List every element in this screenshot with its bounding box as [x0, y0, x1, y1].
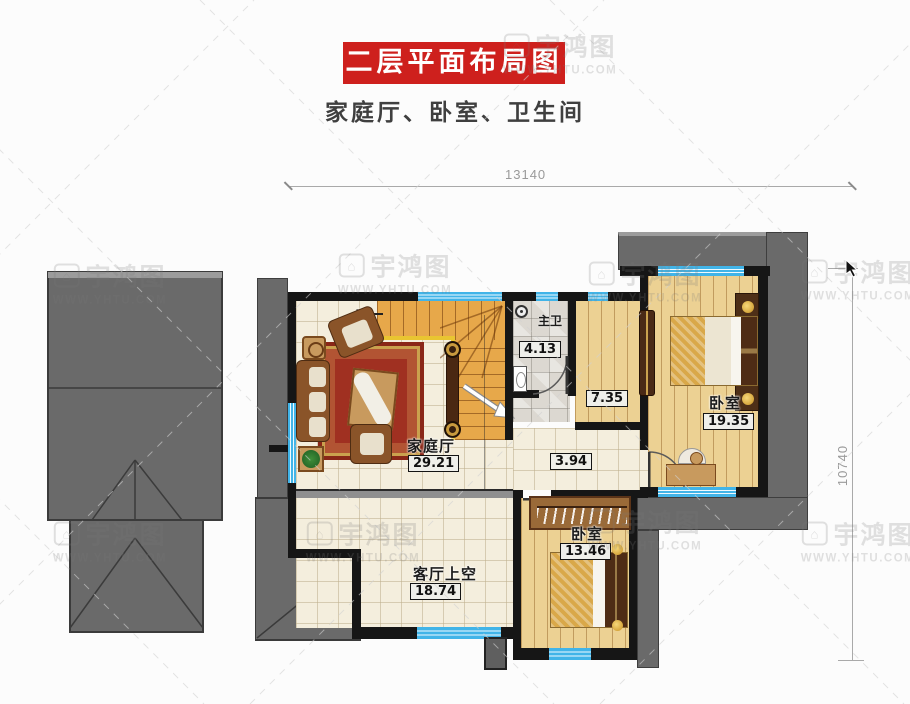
bed-right [670, 316, 758, 386]
dimension-line-top [288, 186, 852, 187]
wall-step-vertical [352, 549, 361, 636]
dimension-tick [838, 660, 864, 661]
plant-pot [298, 446, 324, 472]
wall-stairs-bath [505, 300, 513, 440]
wall-bedroom-bottom-bottom [513, 648, 549, 660]
watermark: ⌂宇鸿图 WWW.YHTU.COM [338, 248, 452, 297]
stair-railing [377, 336, 455, 340]
garage-roof-plan [45, 270, 225, 645]
bedside-lamp [612, 544, 623, 555]
newel-post [444, 341, 461, 358]
armchair [350, 424, 392, 464]
room-label-master-bath: 主卫 [538, 312, 562, 329]
dimension-width-value: 13140 [505, 167, 546, 182]
window-bedroom-right-top [658, 266, 744, 276]
page-subtitle: 家庭厅、卧室、卫生间 [0, 93, 910, 127]
pillar [484, 637, 507, 670]
mouse-cursor [845, 259, 859, 278]
area-value-living-void: 18.74 [410, 583, 461, 600]
vanity-stool [690, 452, 703, 465]
stair-handrail [446, 350, 459, 428]
area-value-bedroom-right: 19.35 [703, 413, 754, 430]
window-top-corridor [588, 292, 608, 301]
area-value-corridor: 7.35 [586, 390, 628, 407]
stair-section-line [484, 315, 485, 495]
bed-bottom [550, 552, 628, 628]
room-label-bedroom-bottom: 卧室 [571, 523, 603, 544]
bedroom-right-wardrobe-door [639, 310, 655, 396]
wall-step-horizontal [288, 549, 360, 558]
area-value-master-bath: 4.13 [519, 341, 561, 358]
wall-bedroom-bottom-left [513, 490, 521, 660]
area-value-bedroom-bottom: 13.46 [560, 543, 611, 560]
sofa-long [296, 360, 330, 442]
shower-head-icon [515, 305, 528, 318]
beam-line [296, 489, 513, 498]
plant [302, 450, 320, 468]
corridor-floor [575, 300, 640, 430]
roof-band-right [766, 232, 808, 530]
vanity-desk [666, 464, 716, 486]
wall-bedroom-right-right [758, 266, 768, 497]
page-title: 二层平面布局图 [343, 42, 565, 84]
toilet [513, 366, 527, 392]
living-void-floor [296, 497, 513, 628]
window-top-hall [418, 292, 502, 301]
roof-band-bottom [637, 497, 808, 530]
bathroom-door [533, 354, 571, 396]
room-label-living-void: 客厅上空 [413, 563, 477, 584]
roof-strip-lower-right [637, 530, 659, 668]
room-label-family-hall: 家庭厅 [407, 435, 455, 456]
window-bedroom-bottom [549, 648, 591, 660]
watermark: ⌂宇鸿图 WWW.YHTU.COM [801, 516, 910, 565]
wall-bedroom-right-top [620, 266, 658, 276]
wall-bedroom-right-bottom [736, 487, 768, 497]
wall-anchor [269, 445, 288, 452]
table-runner [351, 369, 394, 428]
dimension-line-right [852, 268, 853, 660]
coffee-table [347, 368, 399, 430]
dimension-height-value: 10740 [835, 445, 850, 486]
room-label-bedroom-right: 卧室 [709, 392, 741, 413]
area-value-hallway: 3.94 [550, 453, 592, 470]
window-hall-left [288, 403, 296, 483]
bedside-lamp [612, 620, 623, 631]
watermark-logo-icon: ⌂ [338, 254, 364, 278]
floor-plan-page: 二层平面布局图 家庭厅、卧室、卫生间 13140 10740 [0, 0, 910, 704]
wall-hallway-top [575, 422, 648, 430]
watermark-logo-icon: ⌂ [588, 262, 614, 286]
side-table [302, 336, 326, 360]
area-value-family-hall: 29.21 [408, 455, 459, 472]
wall-bedroom-bottom-bottom [591, 648, 637, 660]
window-top-bath [536, 292, 558, 301]
